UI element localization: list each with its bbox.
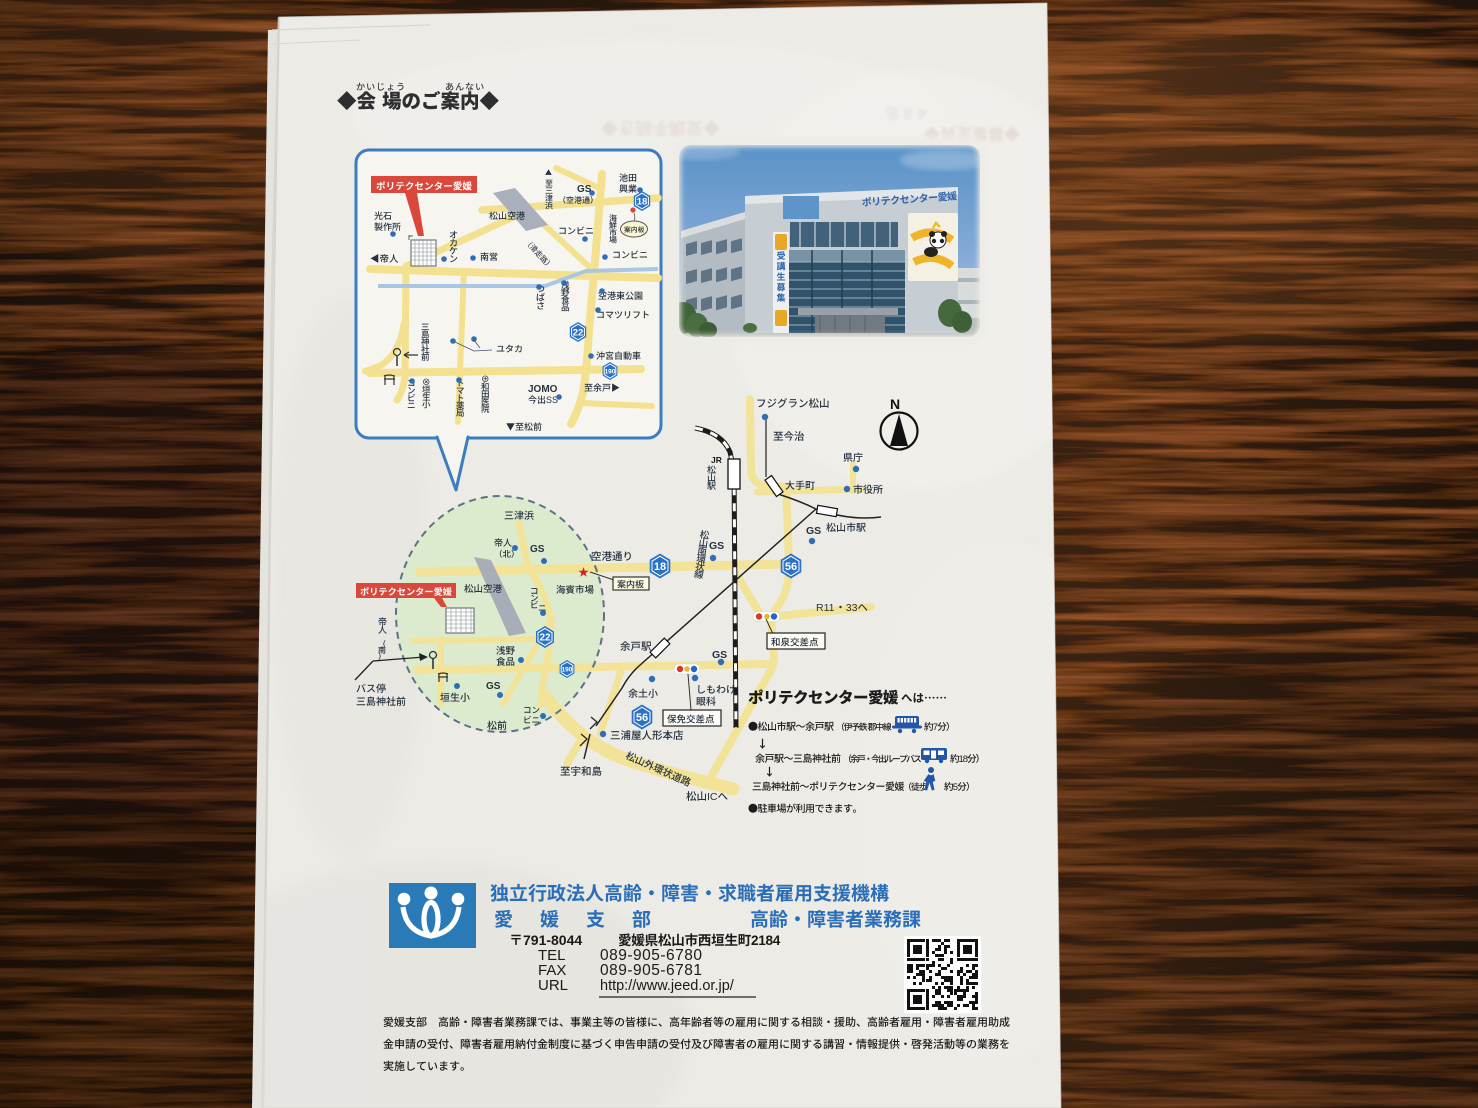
svg-text:GS: GS xyxy=(486,681,501,692)
svg-text:089-905-6781: 089-905-6781 xyxy=(600,962,703,979)
svg-text:IC: IC xyxy=(707,791,718,803)
svg-text:56: 56 xyxy=(636,712,648,724)
svg-text:190: 190 xyxy=(605,368,616,375)
svg-text:N: N xyxy=(890,396,900,412)
svg-text:22: 22 xyxy=(539,633,551,644)
svg-text:791-8044: 791-8044 xyxy=(523,932,582,948)
svg-text:33: 33 xyxy=(846,602,858,614)
svg-text:18: 18 xyxy=(637,196,648,207)
svg-text:56: 56 xyxy=(785,561,797,573)
svg-text:GS: GS xyxy=(530,544,545,555)
svg-text:7: 7 xyxy=(933,722,938,733)
svg-text:190: 190 xyxy=(562,666,573,673)
svg-text:GS: GS xyxy=(709,540,724,552)
svg-text:R11: R11 xyxy=(816,602,835,614)
svg-text:GS: GS xyxy=(806,525,821,537)
svg-text:SS: SS xyxy=(546,395,558,405)
svg-text:JR: JR xyxy=(711,455,722,465)
svg-text:5: 5 xyxy=(953,782,958,793)
svg-text:18: 18 xyxy=(654,561,666,573)
svg-text:http://www.jeed.or.jp/: http://www.jeed.or.jp/ xyxy=(600,978,735,994)
svg-text:18: 18 xyxy=(959,754,968,765)
svg-text:22: 22 xyxy=(573,327,584,338)
svg-text:URL: URL xyxy=(538,977,568,994)
svg-text:2184: 2184 xyxy=(751,933,781,948)
svg-text:JOMO: JOMO xyxy=(528,384,558,395)
